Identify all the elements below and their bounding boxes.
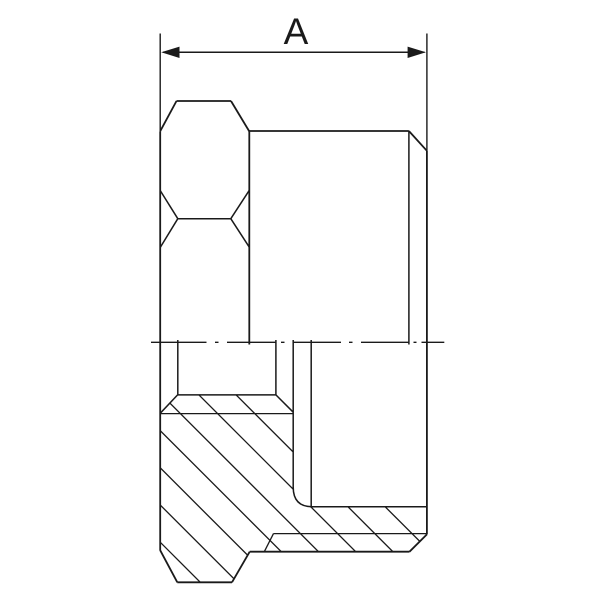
svg-text:A: A	[284, 11, 309, 52]
